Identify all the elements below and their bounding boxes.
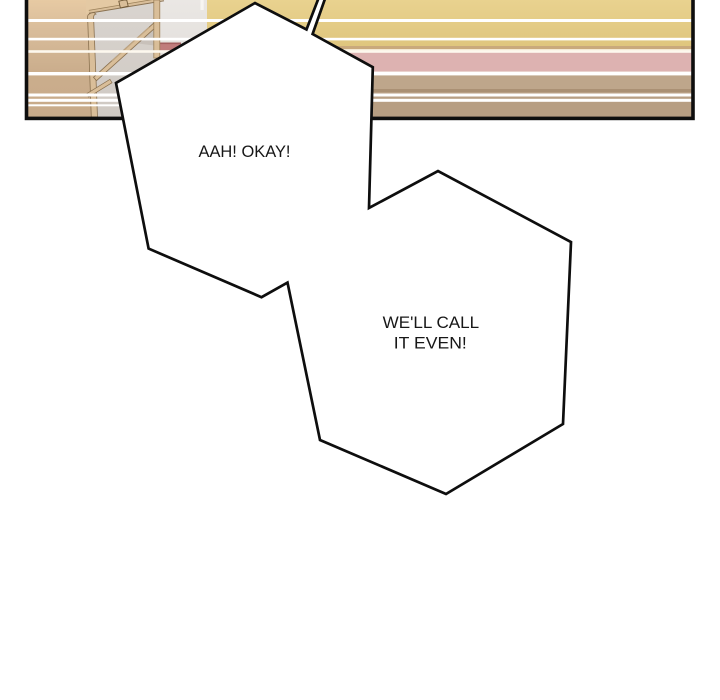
svg-text:AAH! OKAY!: AAH! OKAY!	[199, 142, 291, 161]
svg-text:IT EVEN!: IT EVEN!	[394, 334, 467, 352]
svg-text:WE'LL CALL: WE'LL CALL	[383, 314, 480, 332]
